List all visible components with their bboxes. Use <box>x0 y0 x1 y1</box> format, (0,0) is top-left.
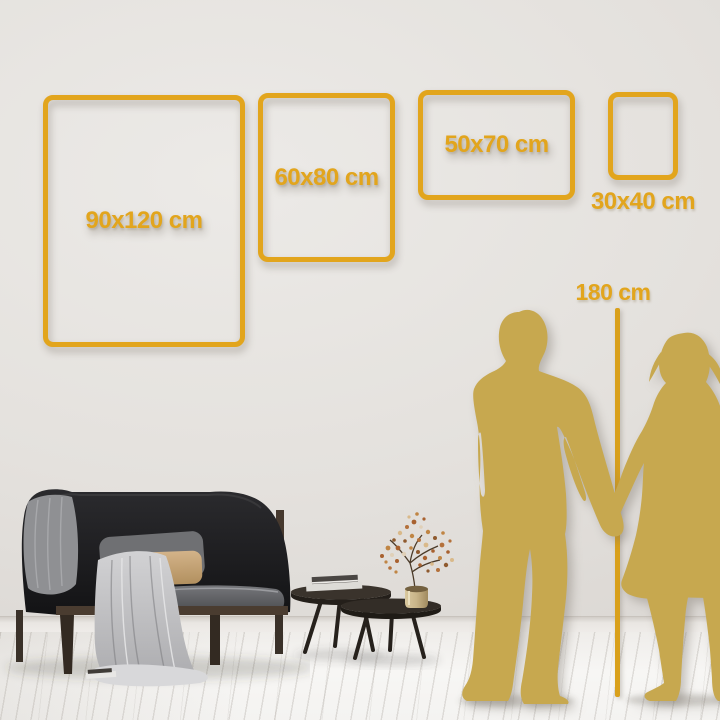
arm-blanket <box>24 495 79 595</box>
man-silhouette <box>462 310 623 704</box>
frame-size-label: 90x120 cm <box>86 209 203 233</box>
frame-size-label: 50x70 cm <box>444 133 548 157</box>
frame-size-label-30x40: 30x40 cm <box>578 190 708 214</box>
woman-right-leg <box>702 588 720 701</box>
poster-frame-90x120: 90x120 cm <box>43 95 245 347</box>
poster-frame-30x40 <box>608 92 678 180</box>
frame-size-label: 60x80 cm <box>274 166 378 190</box>
sofa-front-right-leg <box>210 615 220 665</box>
brass-vase <box>405 586 428 608</box>
couple-silhouettes <box>428 280 720 720</box>
sofa <box>0 470 310 720</box>
poster-frame-60x80: 60x80 cm <box>258 93 395 262</box>
woman-body <box>603 333 720 599</box>
poster-frame-50x70: 50x70 cm <box>418 90 575 200</box>
books-on-table <box>306 575 363 592</box>
size-guide-scene: 90x120 cm 60x80 cm 50x70 cm 30x40 cm 180… <box>0 0 720 720</box>
sofa-rear-left-leg <box>16 610 23 662</box>
woman-left-leg <box>645 590 690 701</box>
